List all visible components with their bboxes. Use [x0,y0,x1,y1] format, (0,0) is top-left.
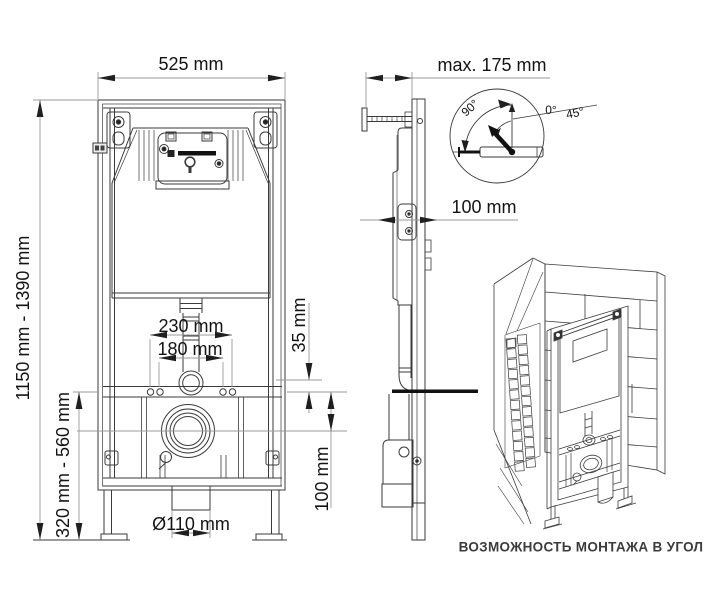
dim-bolt-spacing-230-label: 230 mm [158,317,223,335]
outlet-pipe-bold [392,390,478,394]
mounting-bracket-right [254,112,277,148]
part-number-tag [93,143,107,153]
corner-left-wall [494,258,545,524]
dim-outlet-height-label: 100 mm [313,446,331,511]
dim-height-range-label: 1150 mm - 1390 mm [14,236,32,401]
corner-mount-caption: ВОЗМОЖНОСТЬ МОНТАЖА В УГОЛ [459,540,704,555]
dim-drain-diameter-label: Ø110 mm [152,515,230,533]
fixing-bolt-holes [147,389,235,395]
flush-access-panel [156,132,229,189]
tile-cells [506,335,536,472]
angle-0-label: 0° [545,104,556,116]
dim-depth-side-label: 100 mm [451,198,516,216]
corner-frame [543,306,636,529]
dim-bolt-spacing-180-label: 180 mm [157,340,222,358]
installation-frame-drawing: 525 mm max. 175 mm 100 mm 230 mm 180 mm … [0,0,704,600]
dim-max-depth-label: max. 175 mm [437,56,546,74]
drain-connector [159,405,215,470]
corner-installation-drawing [494,258,665,529]
angle-45-label: 45° [565,105,585,121]
dim-width-label: 525 mm [158,55,223,73]
dim-outlet-range-label: 320 mm - 560 mm [54,392,72,538]
dim-offset-35-label: 35 mm [290,297,308,352]
technical-drawing-canvas [0,0,704,600]
